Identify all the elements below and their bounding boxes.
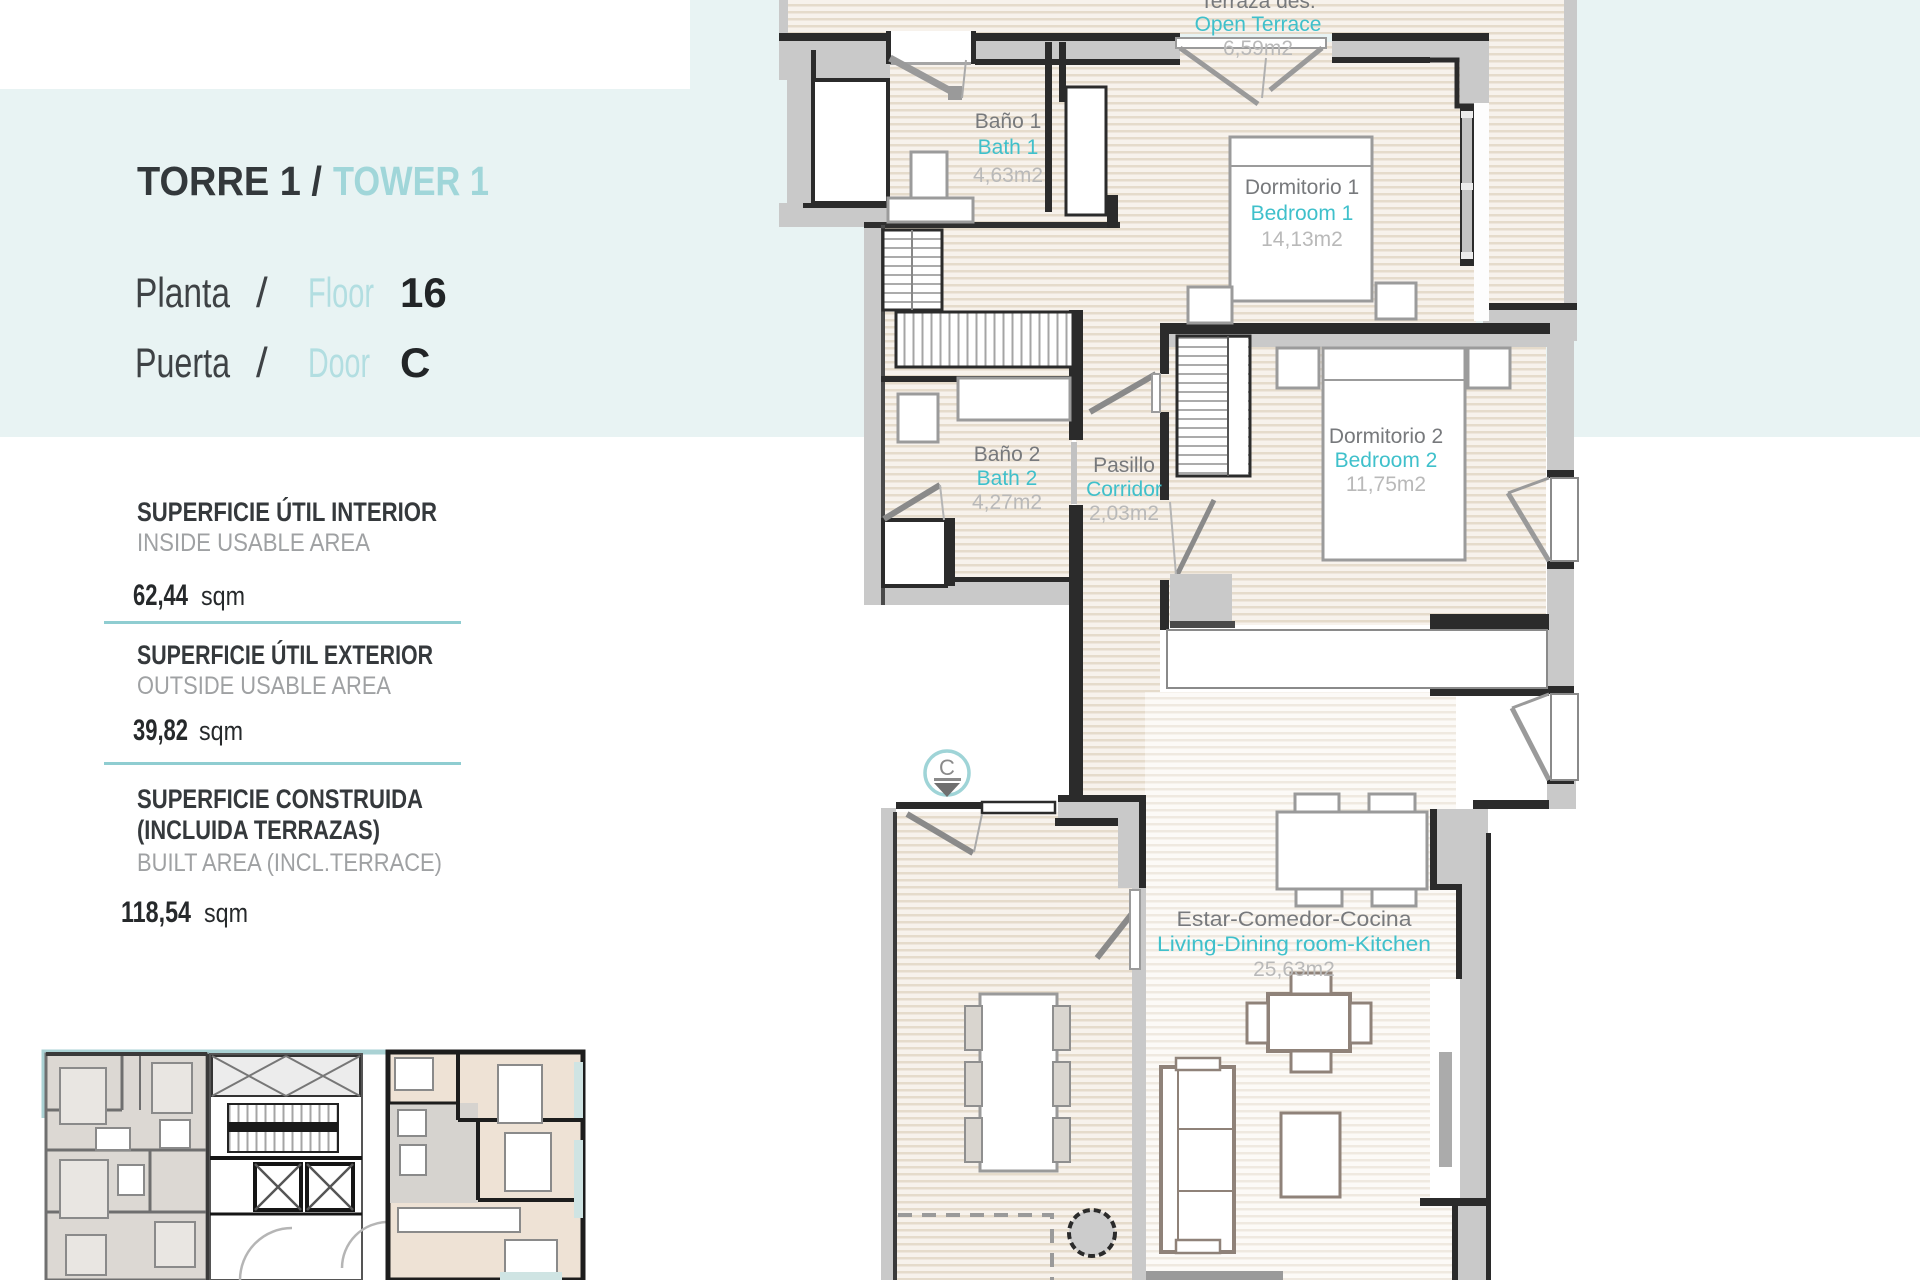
svg-text:Estar-Comedor-Cocina: Estar-Comedor-Cocina bbox=[1177, 908, 1412, 931]
svg-text:Corridor: Corridor bbox=[1086, 478, 1162, 501]
svg-text:Door: Door bbox=[308, 339, 370, 386]
svg-text:Bath 1: Bath 1 bbox=[978, 136, 1039, 159]
svg-text:Baño 1: Baño 1 bbox=[975, 110, 1042, 133]
svg-text:/: / bbox=[256, 269, 268, 316]
svg-text:SUPERFICIE ÚTIL EXTERIOR: SUPERFICIE ÚTIL EXTERIOR bbox=[137, 639, 433, 670]
svg-text:OUTSIDE USABLE AREA: OUTSIDE USABLE AREA bbox=[137, 672, 391, 700]
svg-text:sqm: sqm bbox=[204, 898, 248, 928]
svg-text:Dormitorio 2: Dormitorio 2 bbox=[1329, 425, 1443, 448]
svg-text:Bath 2: Bath 2 bbox=[977, 467, 1038, 490]
svg-text:2,03m2: 2,03m2 bbox=[1089, 502, 1159, 525]
svg-text:Baño 2: Baño 2 bbox=[974, 443, 1041, 466]
svg-text:TOWER 1: TOWER 1 bbox=[333, 158, 489, 204]
svg-text:Bedroom 1: Bedroom 1 bbox=[1251, 202, 1354, 225]
svg-text:Planta: Planta bbox=[135, 269, 231, 316]
svg-text:Dormitorio 1: Dormitorio 1 bbox=[1245, 176, 1359, 199]
svg-text:6,59m2: 6,59m2 bbox=[1223, 37, 1293, 60]
svg-text:4,27m2: 4,27m2 bbox=[972, 491, 1042, 514]
svg-text:25,63m2: 25,63m2 bbox=[1253, 958, 1335, 981]
svg-text:Floor: Floor bbox=[308, 269, 374, 316]
svg-text:Living-Dining room-Kitchen: Living-Dining room-Kitchen bbox=[1157, 933, 1431, 956]
svg-text:39,82: 39,82 bbox=[133, 714, 188, 747]
svg-text:11,75m2: 11,75m2 bbox=[1346, 473, 1426, 496]
svg-text:Bedroom 2: Bedroom 2 bbox=[1335, 449, 1438, 472]
svg-text:14,13m2: 14,13m2 bbox=[1261, 228, 1343, 251]
svg-text:SUPERFICIE CONSTRUIDA: SUPERFICIE CONSTRUIDA bbox=[137, 784, 423, 814]
svg-text:Pasillo: Pasillo bbox=[1093, 454, 1155, 477]
svg-text:118,54: 118,54 bbox=[121, 896, 191, 929]
svg-text:C: C bbox=[400, 339, 430, 386]
svg-text:INSIDE USABLE AREA: INSIDE USABLE AREA bbox=[137, 529, 370, 557]
svg-text:/: / bbox=[256, 339, 268, 386]
svg-text:4,63m2: 4,63m2 bbox=[973, 164, 1043, 187]
svg-text:(INCLUIDA TERRAZAS): (INCLUIDA TERRAZAS) bbox=[137, 815, 380, 845]
svg-text:sqm: sqm bbox=[199, 716, 243, 746]
svg-text:62,44: 62,44 bbox=[133, 579, 188, 612]
svg-text:C: C bbox=[939, 755, 955, 780]
svg-text:Puerta: Puerta bbox=[135, 339, 230, 386]
svg-text:TORRE 1 /: TORRE 1 / bbox=[137, 158, 322, 204]
svg-text:16: 16 bbox=[400, 269, 447, 316]
svg-text:SUPERFICIE ÚTIL INTERIOR: SUPERFICIE ÚTIL INTERIOR bbox=[137, 496, 437, 527]
svg-text:BUILT AREA (INCL.TERRACE): BUILT AREA (INCL.TERRACE) bbox=[137, 849, 442, 877]
svg-text:Terraza des.: Terraza des. bbox=[1200, 0, 1316, 13]
svg-text:Open Terrace: Open Terrace bbox=[1195, 13, 1322, 36]
svg-text:sqm: sqm bbox=[201, 581, 245, 611]
